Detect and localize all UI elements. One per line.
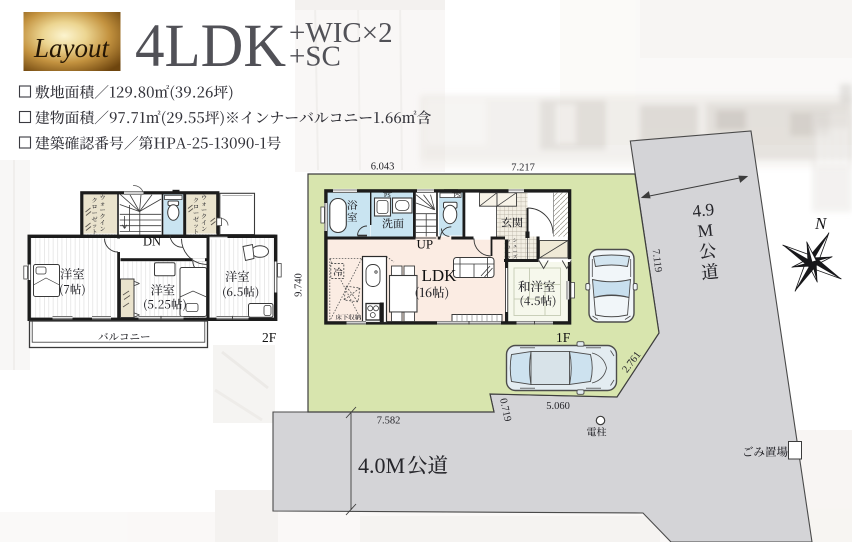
svg-text:4LDK: 4LDK <box>135 13 286 80</box>
svg-text:7.217: 7.217 <box>511 163 535 174</box>
svg-text:1F: 1F <box>556 330 571 345</box>
svg-text:9.740: 9.740 <box>294 273 305 297</box>
svg-text:UP: UP <box>417 237 434 252</box>
svg-text:7.582: 7.582 <box>377 416 401 427</box>
svg-text:M: M <box>697 220 715 242</box>
svg-text:DN: DN <box>143 235 161 249</box>
svg-text:Layout: Layout <box>33 33 111 63</box>
svg-text:4.0M: 4.0M <box>358 453 405 478</box>
svg-text:N: N <box>814 214 828 233</box>
svg-text:+SC: +SC <box>289 41 341 73</box>
svg-text:6.043: 6.043 <box>371 162 395 173</box>
svg-text:5.060: 5.060 <box>546 401 570 412</box>
svg-text:4.9: 4.9 <box>691 199 715 221</box>
svg-text:PS: PS <box>384 193 391 199</box>
svg-text:2F: 2F <box>262 330 277 345</box>
svg-text:LDK: LDK <box>422 266 458 285</box>
svg-text:PS: PS <box>454 193 461 199</box>
